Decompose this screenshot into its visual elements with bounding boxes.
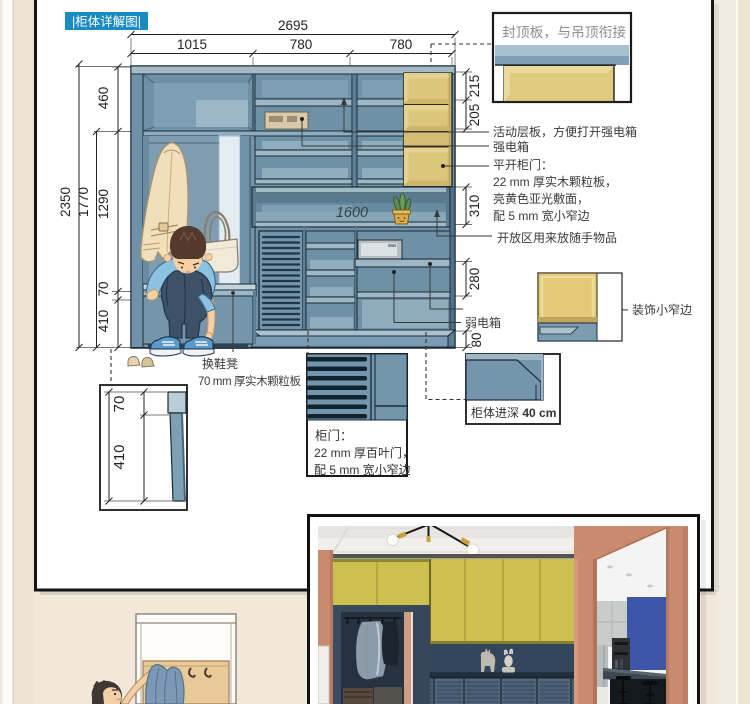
svg-text:1290: 1290 xyxy=(96,189,111,219)
svg-text:780: 780 xyxy=(390,37,413,52)
svg-text:亮黄色亚光敷面，: 亮黄色亚光敷面， xyxy=(493,191,589,206)
svg-text:1600: 1600 xyxy=(336,205,368,221)
svg-text:780: 780 xyxy=(290,37,313,52)
svg-text:强电箱: 强电箱 xyxy=(493,139,529,154)
svg-text:开放区用来放随手物品: 开放区用来放随手物品 xyxy=(497,230,617,245)
svg-text:460: 460 xyxy=(96,87,111,110)
svg-text:70: 70 xyxy=(111,396,128,413)
svg-text:平开柜门：: 平开柜门： xyxy=(493,157,553,172)
svg-text:配 5 mm 宽小窄边: 配 5 mm 宽小窄边 xyxy=(314,462,411,477)
svg-text:22 mm 厚百叶门，: 22 mm 厚百叶门， xyxy=(314,445,414,460)
svg-text:柜门：: 柜门： xyxy=(315,428,353,443)
svg-text:柜体进深 40 cm: 柜体进深 40 cm xyxy=(471,406,556,420)
svg-text:装饰小窄边: 装饰小窄边 xyxy=(632,302,692,317)
svg-text:弱电箱: 弱电箱 xyxy=(465,315,501,330)
svg-text:80: 80 xyxy=(469,332,484,347)
svg-text:280: 280 xyxy=(467,268,482,291)
svg-text:215: 215 xyxy=(467,75,482,98)
svg-text:205: 205 xyxy=(467,104,482,127)
svg-text:70: 70 xyxy=(96,281,111,296)
svg-text:活动层板，方便打开强电箱: 活动层板，方便打开强电箱 xyxy=(493,124,637,139)
svg-text:1015: 1015 xyxy=(177,37,207,52)
svg-text:封顶板，与吊顶衔接: 封顶板，与吊顶衔接 xyxy=(502,24,626,40)
svg-text:换鞋凳: 换鞋凳 xyxy=(202,356,238,371)
svg-text:1770: 1770 xyxy=(76,187,91,217)
svg-text:310: 310 xyxy=(467,195,482,218)
svg-text:2695: 2695 xyxy=(278,18,308,33)
svg-text:410: 410 xyxy=(111,444,128,469)
svg-text:410: 410 xyxy=(96,310,111,333)
svg-text:配 5 mm 宽小窄边: 配 5 mm 宽小窄边 xyxy=(493,208,590,223)
svg-text:|柜体详解图|: |柜体详解图| xyxy=(72,14,141,29)
svg-text:22 mm 厚实木颗粒板，: 22 mm 厚实木颗粒板， xyxy=(493,174,617,189)
svg-text:2350: 2350 xyxy=(58,187,73,217)
svg-text:70 mm 厚实木颗粒板: 70 mm 厚实木颗粒板 xyxy=(198,374,301,388)
